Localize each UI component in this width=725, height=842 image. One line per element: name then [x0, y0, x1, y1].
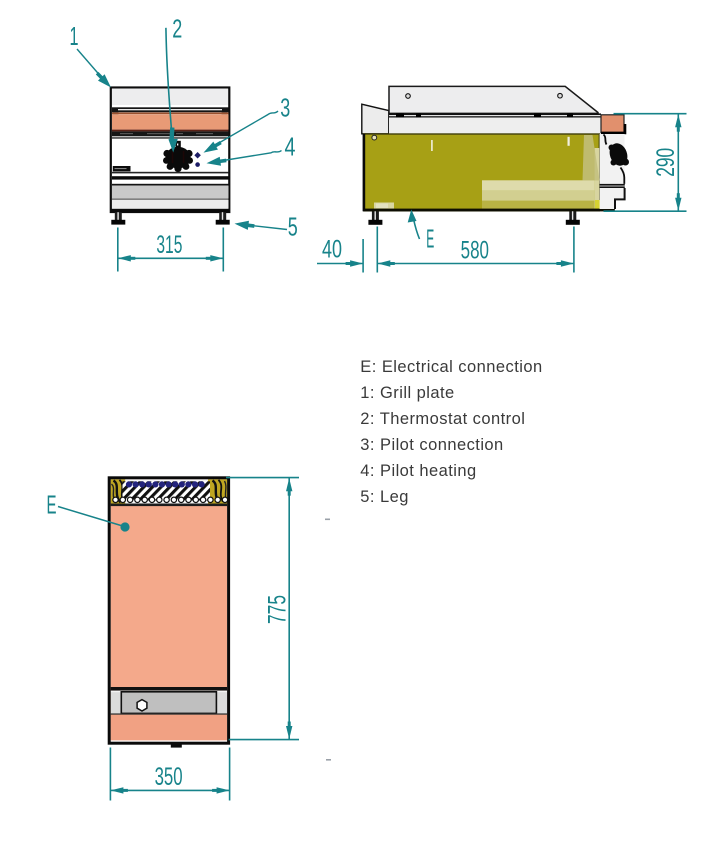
- svg-text:E: Electrical connection: E: Electrical connection: [360, 358, 542, 376]
- svg-text:40: 40: [322, 236, 342, 264]
- svg-text:350: 350: [155, 763, 183, 791]
- svg-text:5: 5: [288, 212, 298, 242]
- svg-text:1: Grill plate: 1: Grill plate: [360, 384, 454, 402]
- svg-text:2: Thermostat control: 2: Thermostat control: [360, 410, 525, 428]
- svg-text:290: 290: [652, 148, 680, 177]
- svg-text:775: 775: [264, 595, 292, 624]
- svg-text:580: 580: [461, 236, 489, 264]
- svg-text:3: Pilot connection: 3: Pilot connection: [360, 436, 503, 454]
- svg-text:2: 2: [172, 14, 182, 44]
- svg-text:315: 315: [156, 231, 182, 259]
- svg-text:4: 4: [285, 132, 296, 162]
- svg-text:3: 3: [280, 93, 290, 123]
- svg-text:5: Leg: 5: Leg: [360, 488, 409, 506]
- svg-text:E: E: [426, 224, 434, 254]
- svg-text:4: Pilot heating: 4: Pilot heating: [360, 462, 476, 480]
- svg-text:1: 1: [70, 21, 79, 51]
- svg-text:E: E: [47, 490, 57, 520]
